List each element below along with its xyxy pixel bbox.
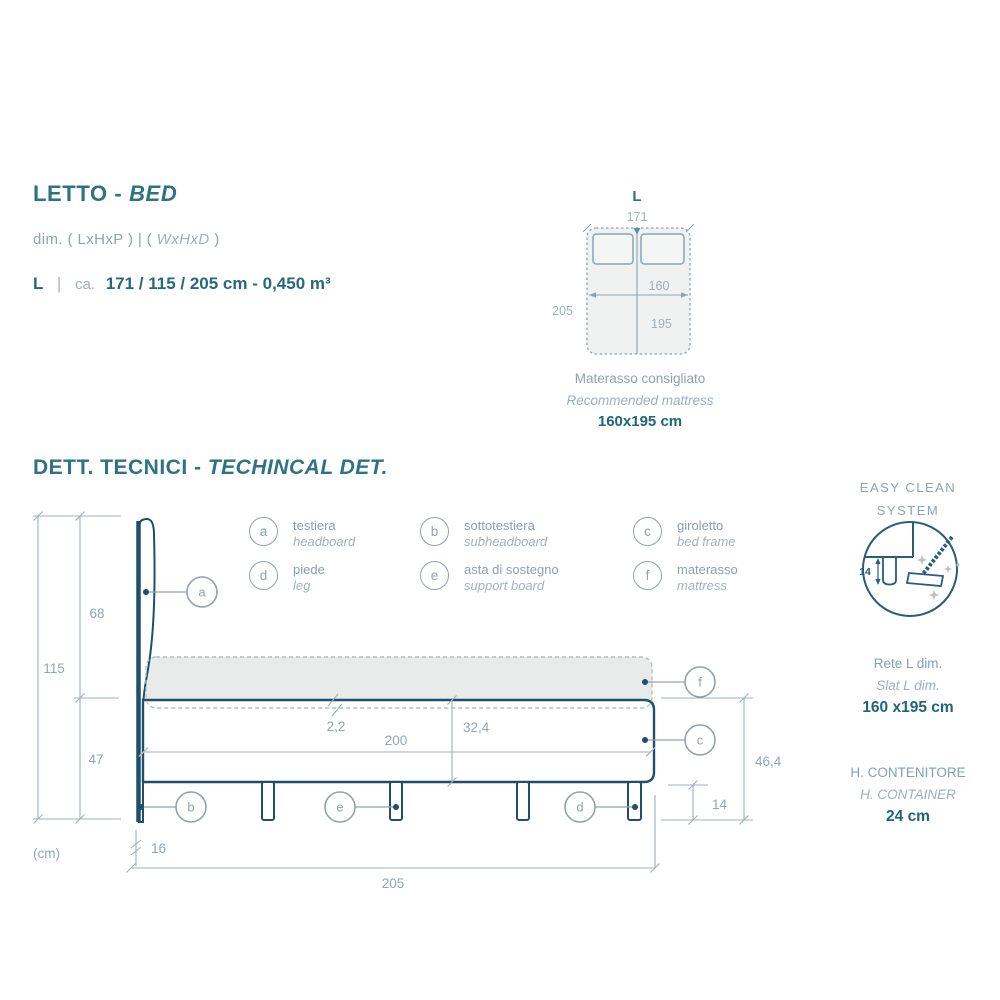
- slat-label-en: Slat L dim.: [828, 675, 988, 697]
- page-title: LETTO - BED: [33, 181, 177, 207]
- lower-zone-label: 47: [88, 752, 103, 767]
- leg-height-label: 14: [712, 797, 728, 812]
- container-label-en: H. CONTAINER: [828, 784, 988, 806]
- leg-height-dimension: [668, 781, 708, 825]
- slat-dimensions-block: Rete L dim. Slat L dim. 160 x195 cm: [828, 653, 988, 719]
- support-thickness-label: 2,2: [327, 719, 346, 734]
- container-label-it: H. CONTENITORE: [828, 762, 988, 784]
- easy-clean-icon: 14: [850, 508, 970, 628]
- callout-e: e: [325, 792, 399, 822]
- dim-key-close: ): [214, 231, 219, 248]
- bed-side-view-drawing: 115 68 47 (cm) 200: [0, 480, 800, 910]
- size-value: 171 / 115 / 205 cm - 0,450 m³: [106, 274, 331, 293]
- size-code: L: [33, 274, 43, 293]
- page-title-en: BED: [129, 181, 177, 206]
- headboard-above-label: 68: [89, 606, 104, 621]
- callout-b-letter: b: [187, 800, 194, 815]
- dim-key-pipe: |: [138, 231, 142, 248]
- size-pipe: |: [57, 274, 61, 293]
- callout-f-letter: f: [698, 675, 702, 690]
- dimension-key: dim. ( LxHxP ) | ( WxHxD ): [33, 231, 220, 248]
- length-label: 205: [382, 876, 405, 891]
- top-view-outline: [583, 224, 694, 354]
- container-height-block: H. CONTENITORE H. CONTAINER 24 cm: [828, 762, 988, 828]
- mattress-caption-size: 160x195 cm: [537, 411, 743, 433]
- callout-d-letter: d: [576, 800, 583, 815]
- section-title-it: DETT. TECNICI -: [33, 456, 202, 479]
- dim-key-italic: WxHxD: [157, 231, 210, 248]
- spec-sheet-page: LETTO - BED dim. ( LxHxP ) | ( WxHxD ) L…: [0, 0, 1000, 1000]
- mattress-caption-en: Recommended mattress: [537, 390, 743, 412]
- top-view-size-label: L: [632, 188, 641, 205]
- headboard-thickness-label: 16: [151, 841, 166, 856]
- unit-label: (cm): [33, 846, 60, 861]
- callout-a-letter: a: [198, 585, 206, 600]
- section-title: DETT. TECNICI - TECHINCAL DET.: [33, 456, 388, 480]
- top-view-width-label: 171: [627, 210, 648, 224]
- slat-value: 160 x195 cm: [828, 697, 988, 719]
- section-title-en: TECHINCAL DET.: [208, 456, 388, 479]
- size-approx: ca.: [75, 276, 95, 293]
- side-height-dimension: [661, 694, 753, 825]
- mattress-caption: Materasso consigliato Recommended mattre…: [537, 368, 743, 433]
- frame-height-label: 32,4: [463, 720, 490, 735]
- pillow-right: [641, 234, 684, 264]
- pillow-left: [593, 234, 633, 264]
- side-height-label: 46,4: [755, 754, 782, 769]
- total-height-label: 115: [43, 661, 65, 676]
- callout-c-letter: c: [697, 733, 704, 748]
- page-title-it: LETTO -: [33, 181, 122, 206]
- easy-clean-line1: EASY CLEAN: [843, 476, 973, 499]
- bed-top-view-diagram: L 171 160 195 205: [540, 182, 740, 367]
- easy-clean-clearance-label: 14: [859, 566, 871, 578]
- slat-label-it: Rete L dim.: [828, 653, 988, 675]
- dim-key-prefix: dim. ( LxHxP ): [33, 231, 133, 248]
- top-view-length-label: 205: [552, 304, 573, 318]
- inner-length-label: 195: [651, 317, 672, 331]
- mattress-caption-it: Materasso consigliato: [537, 368, 743, 390]
- callout-f: f: [642, 667, 715, 697]
- container-value: 24 cm: [828, 806, 988, 828]
- callout-b: b: [138, 792, 206, 822]
- inner-length-label: 200: [385, 733, 408, 748]
- size-line: L | ca. 171 / 115 / 205 cm - 0,450 m³: [33, 274, 331, 294]
- callout-e-letter: e: [336, 800, 343, 815]
- inner-width-label: 160: [649, 279, 670, 293]
- dim-key-open: (: [147, 231, 152, 248]
